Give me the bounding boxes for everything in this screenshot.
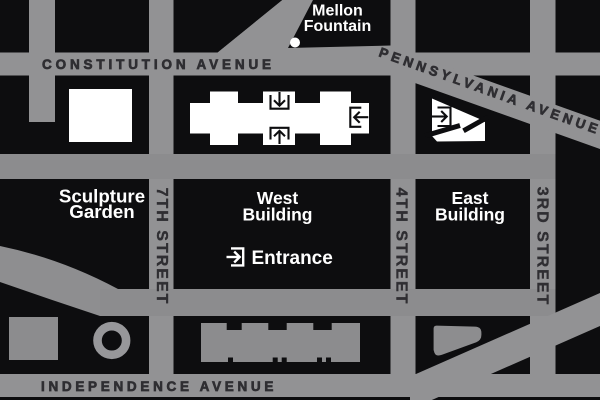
svg-text:Entrance: Entrance: [252, 248, 333, 269]
svg-text:Building: Building: [435, 205, 505, 225]
svg-text:7TH STREET: 7TH STREET: [153, 188, 170, 306]
svg-text:Mellon: Mellon: [312, 2, 363, 19]
svg-text:4TH STREET: 4TH STREET: [393, 188, 410, 306]
svg-text:CONSTITUTION AVENUE: CONSTITUTION AVENUE: [42, 57, 275, 72]
svg-text:Garden: Garden: [69, 201, 134, 222]
svg-text:Building: Building: [243, 204, 313, 224]
svg-text:Fountain: Fountain: [304, 18, 372, 35]
svg-text:INDEPENDENCE AVENUE: INDEPENDENCE AVENUE: [41, 379, 277, 394]
svg-text:3RD STREET: 3RD STREET: [534, 187, 551, 307]
